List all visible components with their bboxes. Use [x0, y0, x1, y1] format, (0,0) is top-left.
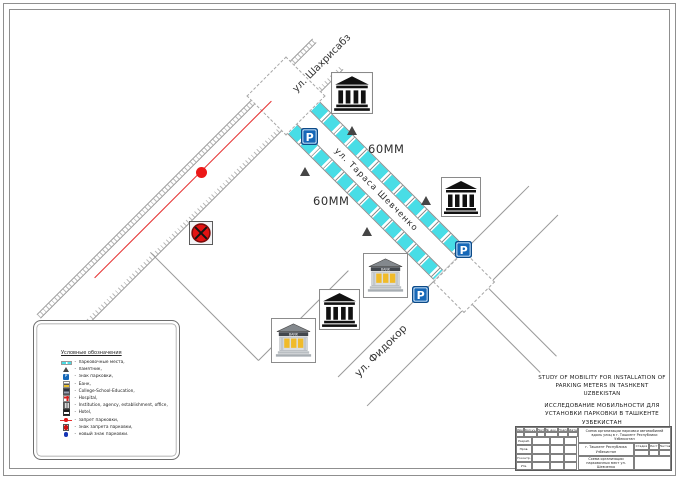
legend-item-label: Institution, agency, establishment, offi…	[79, 403, 168, 408]
legend-separator: -	[75, 374, 77, 379]
legend-item-label: Hotel,	[79, 410, 92, 415]
institution-building-icon	[319, 289, 360, 330]
company-cell	[634, 456, 671, 470]
titleblock-empty-cell	[550, 437, 564, 445]
legend-item: -Institution, agency, establishment, off…	[60, 402, 179, 409]
hotel-icon	[60, 409, 72, 416]
titleblock-empty-cell	[564, 437, 577, 445]
titleblock-empty-cell	[532, 462, 550, 470]
parking-sign-icon	[60, 374, 72, 380]
role-cell: Пров.	[516, 445, 532, 453]
titleblock-company-cell	[634, 456, 671, 470]
legend-separator: -	[75, 360, 77, 365]
role-cell: Утв.	[516, 462, 532, 470]
hospital-icon	[60, 395, 72, 402]
legend-item: -Банк,	[60, 381, 179, 388]
project-title-block: STUDY OF MOBILITY FOR INSTALLATION OF PA…	[536, 374, 668, 427]
legend-item-label: запрет парковки,	[79, 418, 119, 423]
legend-item: -запрет парковки,	[60, 417, 179, 424]
parking-sign-icon: P	[455, 241, 472, 258]
legend-item: -знак запрета парковки,	[60, 424, 179, 431]
titleblock-stage-grid: СтадияЛистЛистов	[634, 443, 671, 456]
legend-separator: -	[75, 382, 77, 387]
legend-separator: -	[75, 403, 77, 408]
titleblock-revision-header: Изм.Кол.уч.Лист№ док.Подп.Дата	[516, 427, 578, 437]
svg-text:BANK: BANK	[289, 332, 299, 336]
legend-separator: -	[75, 418, 77, 423]
titleblock-empty-cell	[550, 462, 564, 470]
legend-item-label: знак парковки,	[79, 374, 113, 379]
new-parking-sign-icon	[60, 432, 72, 437]
parking-sign-icon: P	[412, 286, 429, 303]
legend-item: -новый знак парковки.	[60, 431, 179, 438]
legend-item-label: новый знак парковки.	[79, 432, 129, 437]
legend-item-label: College-School-Education,	[79, 389, 135, 394]
legend-item: -Hotel,	[60, 409, 179, 416]
education-icon	[60, 388, 72, 395]
svg-text:P: P	[460, 244, 468, 257]
titleblock-roles: Разраб.Пров.Н.контр.Утв.	[516, 437, 578, 470]
bank-building-icon: BANK	[271, 318, 316, 363]
institution-building-icon	[441, 177, 481, 217]
svg-text:P: P	[306, 131, 314, 144]
legend-item: -College-School-Education,	[60, 388, 179, 395]
no-parking-sign-icon	[60, 424, 72, 431]
titleblock-empty-cell	[550, 445, 564, 453]
org-text: г. Ташкент Республика Узбекистан	[578, 443, 634, 456]
project-title-en: STUDY OF MOBILITY FOR INSTALLATION OF PA…	[536, 374, 668, 398]
legend-separator: -	[75, 410, 77, 415]
monument-triangle-icon	[421, 196, 431, 205]
titleblock-empty-cell	[532, 454, 550, 462]
titleblock-empty-cell	[532, 437, 550, 445]
parking-sign-icon: P	[301, 128, 318, 145]
titleblock-empty-cell	[564, 454, 577, 462]
legend-separator: -	[75, 367, 77, 372]
legend-separator: -	[75, 396, 77, 401]
no-parking-line-icon	[60, 420, 72, 421]
monument-icon	[60, 367, 72, 372]
titleblock-empty-cell	[532, 445, 550, 453]
legend-item-label: парковочные места,	[79, 360, 125, 365]
legend-item: -Hospital,	[60, 395, 179, 402]
svg-text:BANK: BANK	[381, 267, 391, 271]
parking-bay-icon	[60, 361, 72, 365]
bank-building-icon: BANK	[363, 253, 408, 298]
institution-icon	[60, 402, 72, 409]
titleblock-empty-cell	[550, 454, 564, 462]
titleblock-org: г. Ташкент Республика Узбекистан	[578, 443, 634, 456]
monument-triangle-icon	[300, 167, 310, 176]
dimension-label-top: 60MM	[368, 142, 404, 156]
svg-text:P: P	[417, 289, 425, 302]
legend-separator: -	[75, 432, 77, 437]
legend-item: -знак парковки,	[60, 373, 179, 380]
sheet-title-text: Схема организации парковочных мест ул. Ш…	[578, 456, 634, 470]
doc-title-text: Схема организации парковки автомобилей в…	[578, 427, 671, 443]
legend-separator: -	[75, 425, 77, 430]
titleblock-empty-cell	[564, 462, 577, 470]
no-stopping-sign-icon	[189, 221, 213, 245]
legend-box: Условные обозначения -парковочные места,…	[33, 320, 180, 460]
legend-separator: -	[75, 389, 77, 394]
legend-item: -парковочные места,	[60, 359, 179, 366]
role-cell: Н.контр.	[516, 454, 532, 462]
legend-item-label: памятник,	[79, 367, 102, 372]
legend-item-label: знак запрета парковки,	[79, 425, 133, 430]
monument-triangle-icon	[347, 126, 357, 135]
no-parking-point-icon	[196, 167, 207, 178]
dimension-label-bottom: 60MM	[313, 194, 349, 208]
legend-item-label: Банк,	[79, 382, 91, 387]
legend-item: -памятник,	[60, 366, 179, 373]
role-cell: Разраб.	[516, 437, 532, 445]
titleblock-sheet-title: Схема организации парковочных мест ул. Ш…	[578, 456, 634, 470]
bank-icon	[60, 381, 72, 388]
gost-title-block: Изм.Кол.уч.Лист№ док.Подп.Дата Разраб.Пр…	[515, 426, 672, 471]
project-title-ru: ИССЛЕДОВАНИЕ МОБИЛЬНОСТИ ДЛЯ УСТАНОВКИ П…	[536, 402, 668, 426]
titleblock-empty-cell	[564, 445, 577, 453]
institution-building-icon	[331, 72, 373, 114]
legend-items: -парковочные места,-памятник,-знак парко…	[34, 359, 179, 438]
legend-title: Условные обозначения	[61, 350, 179, 356]
monument-triangle-icon	[362, 227, 372, 236]
titleblock-doc-title: Схема организации парковки автомобилей в…	[578, 427, 671, 443]
legend-item-label: Hospital,	[79, 396, 98, 401]
